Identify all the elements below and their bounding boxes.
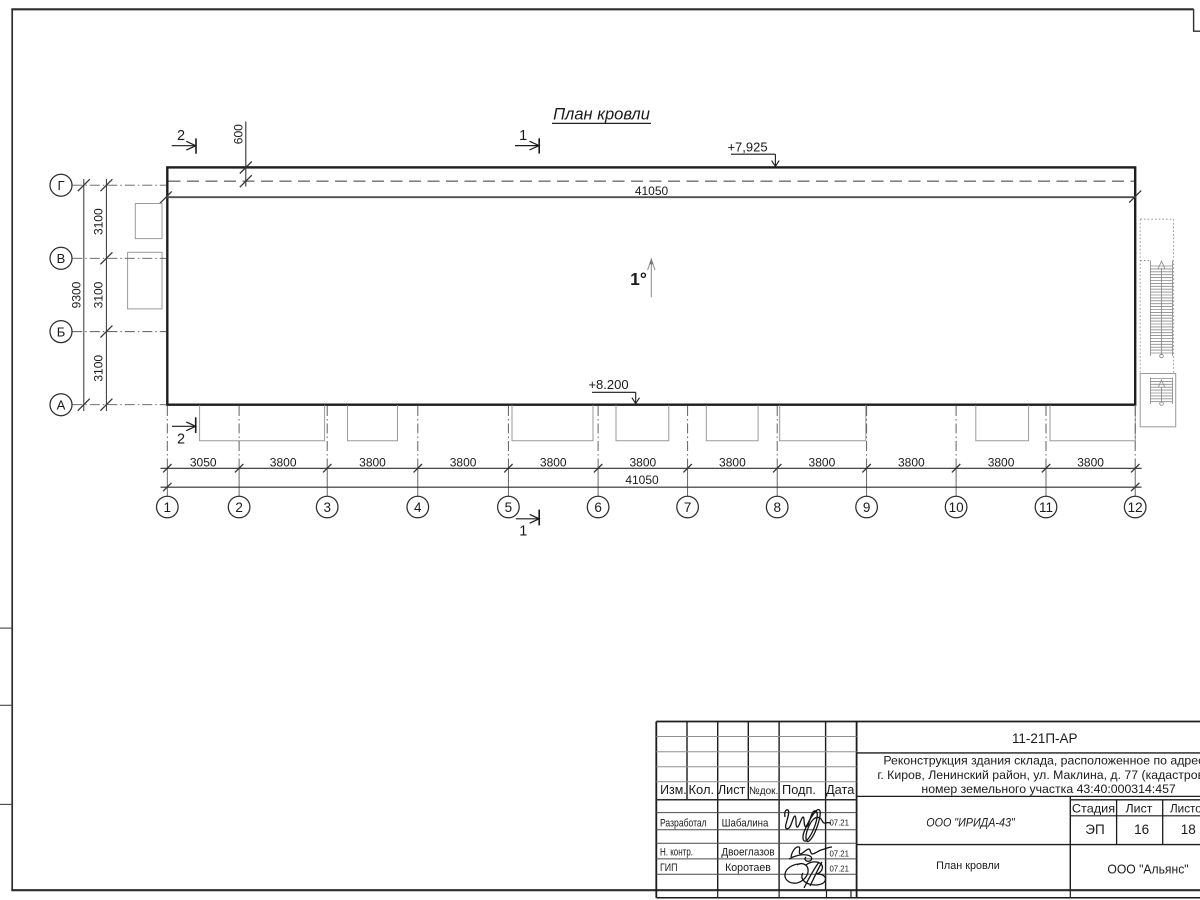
svg-text:3800: 3800 bbox=[719, 455, 746, 469]
svg-text:2: 2 bbox=[235, 500, 243, 515]
svg-text:3100: 3100 bbox=[92, 355, 106, 382]
svg-text:№док.: №док. bbox=[749, 785, 778, 797]
svg-text:А: А bbox=[57, 397, 66, 412]
svg-text:Разработал: Разработал bbox=[660, 817, 707, 829]
svg-text:3800: 3800 bbox=[450, 455, 477, 469]
svg-text:5: 5 bbox=[505, 500, 513, 515]
svg-text:Реконструкция здания склада, р: Реконструкция здания склада, расположенн… bbox=[883, 753, 1200, 767]
svg-text:Г: Г bbox=[57, 178, 64, 193]
svg-text:3: 3 bbox=[323, 500, 331, 515]
svg-text:7: 7 bbox=[684, 500, 692, 515]
svg-text:4: 4 bbox=[414, 500, 422, 515]
svg-text:ООО "Альянс": ООО "Альянс" bbox=[1107, 861, 1189, 876]
svg-text:12: 12 bbox=[1128, 500, 1143, 515]
svg-text:Подп.: Подп. bbox=[782, 782, 816, 797]
svg-text:Кол.: Кол. bbox=[688, 782, 714, 797]
svg-text:Дата: Дата bbox=[826, 782, 855, 797]
svg-text:3100: 3100 bbox=[92, 281, 106, 308]
svg-text:3800: 3800 bbox=[540, 455, 567, 469]
svg-text:16: 16 bbox=[1134, 822, 1149, 837]
svg-text:Двоеглазов: Двоеглазов bbox=[721, 847, 774, 859]
svg-text:6: 6 bbox=[594, 500, 602, 515]
svg-text:3800: 3800 bbox=[988, 455, 1015, 469]
svg-text:План кровли: План кровли bbox=[936, 860, 1000, 872]
svg-text:1: 1 bbox=[164, 500, 172, 515]
svg-text:ООО "ИРИДА-43": ООО "ИРИДА-43" bbox=[926, 818, 1015, 830]
svg-text:8: 8 bbox=[773, 500, 781, 515]
svg-text:Лист: Лист bbox=[718, 782, 746, 797]
svg-text:Изм.: Изм. bbox=[660, 782, 687, 797]
svg-text:+7,925: +7,925 bbox=[727, 140, 767, 155]
svg-text:ГИП: ГИП bbox=[660, 862, 678, 874]
svg-text:В: В bbox=[57, 251, 66, 266]
svg-text:11-21П-АР: 11-21П-АР bbox=[1012, 730, 1078, 746]
svg-text:07.21: 07.21 bbox=[829, 865, 849, 874]
svg-text:ЭП: ЭП bbox=[1085, 822, 1104, 837]
svg-text:Коротаев: Коротаев bbox=[725, 862, 771, 874]
svg-text:Шабалина: Шабалина bbox=[722, 817, 769, 829]
svg-text:2: 2 bbox=[177, 128, 185, 144]
svg-text:3800: 3800 bbox=[898, 455, 925, 469]
svg-text:3100: 3100 bbox=[92, 208, 106, 235]
svg-text:3800: 3800 bbox=[1077, 455, 1104, 469]
svg-text:1: 1 bbox=[519, 128, 527, 144]
svg-text:9300: 9300 bbox=[69, 281, 83, 308]
svg-text:План кровли: План кровли bbox=[553, 106, 650, 124]
svg-text:3800: 3800 bbox=[809, 455, 836, 469]
svg-text:Б: Б bbox=[57, 324, 66, 339]
svg-text:41050: 41050 bbox=[635, 184, 669, 198]
svg-text:3800: 3800 bbox=[270, 455, 297, 469]
svg-text:Н. контр.: Н. контр. bbox=[660, 847, 693, 859]
svg-text:+8.200: +8.200 bbox=[588, 377, 628, 392]
svg-text:41050: 41050 bbox=[625, 473, 659, 487]
svg-text:3800: 3800 bbox=[629, 455, 656, 469]
svg-text:18: 18 bbox=[1181, 822, 1196, 837]
svg-text:3050: 3050 bbox=[190, 455, 217, 469]
svg-text:600: 600 bbox=[231, 124, 245, 144]
svg-text:Листов: Листов bbox=[1170, 802, 1200, 816]
svg-text:3800: 3800 bbox=[359, 455, 386, 469]
svg-text:Лист: Лист bbox=[1126, 802, 1153, 816]
svg-text:г. Киров, Ленинский район, ул.: г. Киров, Ленинский район, ул. Маклина, … bbox=[877, 768, 1200, 782]
svg-text:11: 11 bbox=[1039, 500, 1053, 515]
svg-text:10: 10 bbox=[949, 500, 964, 515]
svg-text:07.21: 07.21 bbox=[829, 849, 849, 858]
svg-text:9: 9 bbox=[863, 500, 871, 515]
svg-text:1°: 1° bbox=[630, 269, 647, 289]
svg-text:1: 1 bbox=[519, 524, 527, 540]
svg-text:номер земельного участка 43:40: номер земельного участка 43:40:000314:45… bbox=[921, 782, 1175, 796]
svg-text:2: 2 bbox=[177, 432, 185, 448]
svg-text:07.21: 07.21 bbox=[829, 819, 849, 828]
svg-text:Стадия: Стадия bbox=[1072, 802, 1115, 816]
